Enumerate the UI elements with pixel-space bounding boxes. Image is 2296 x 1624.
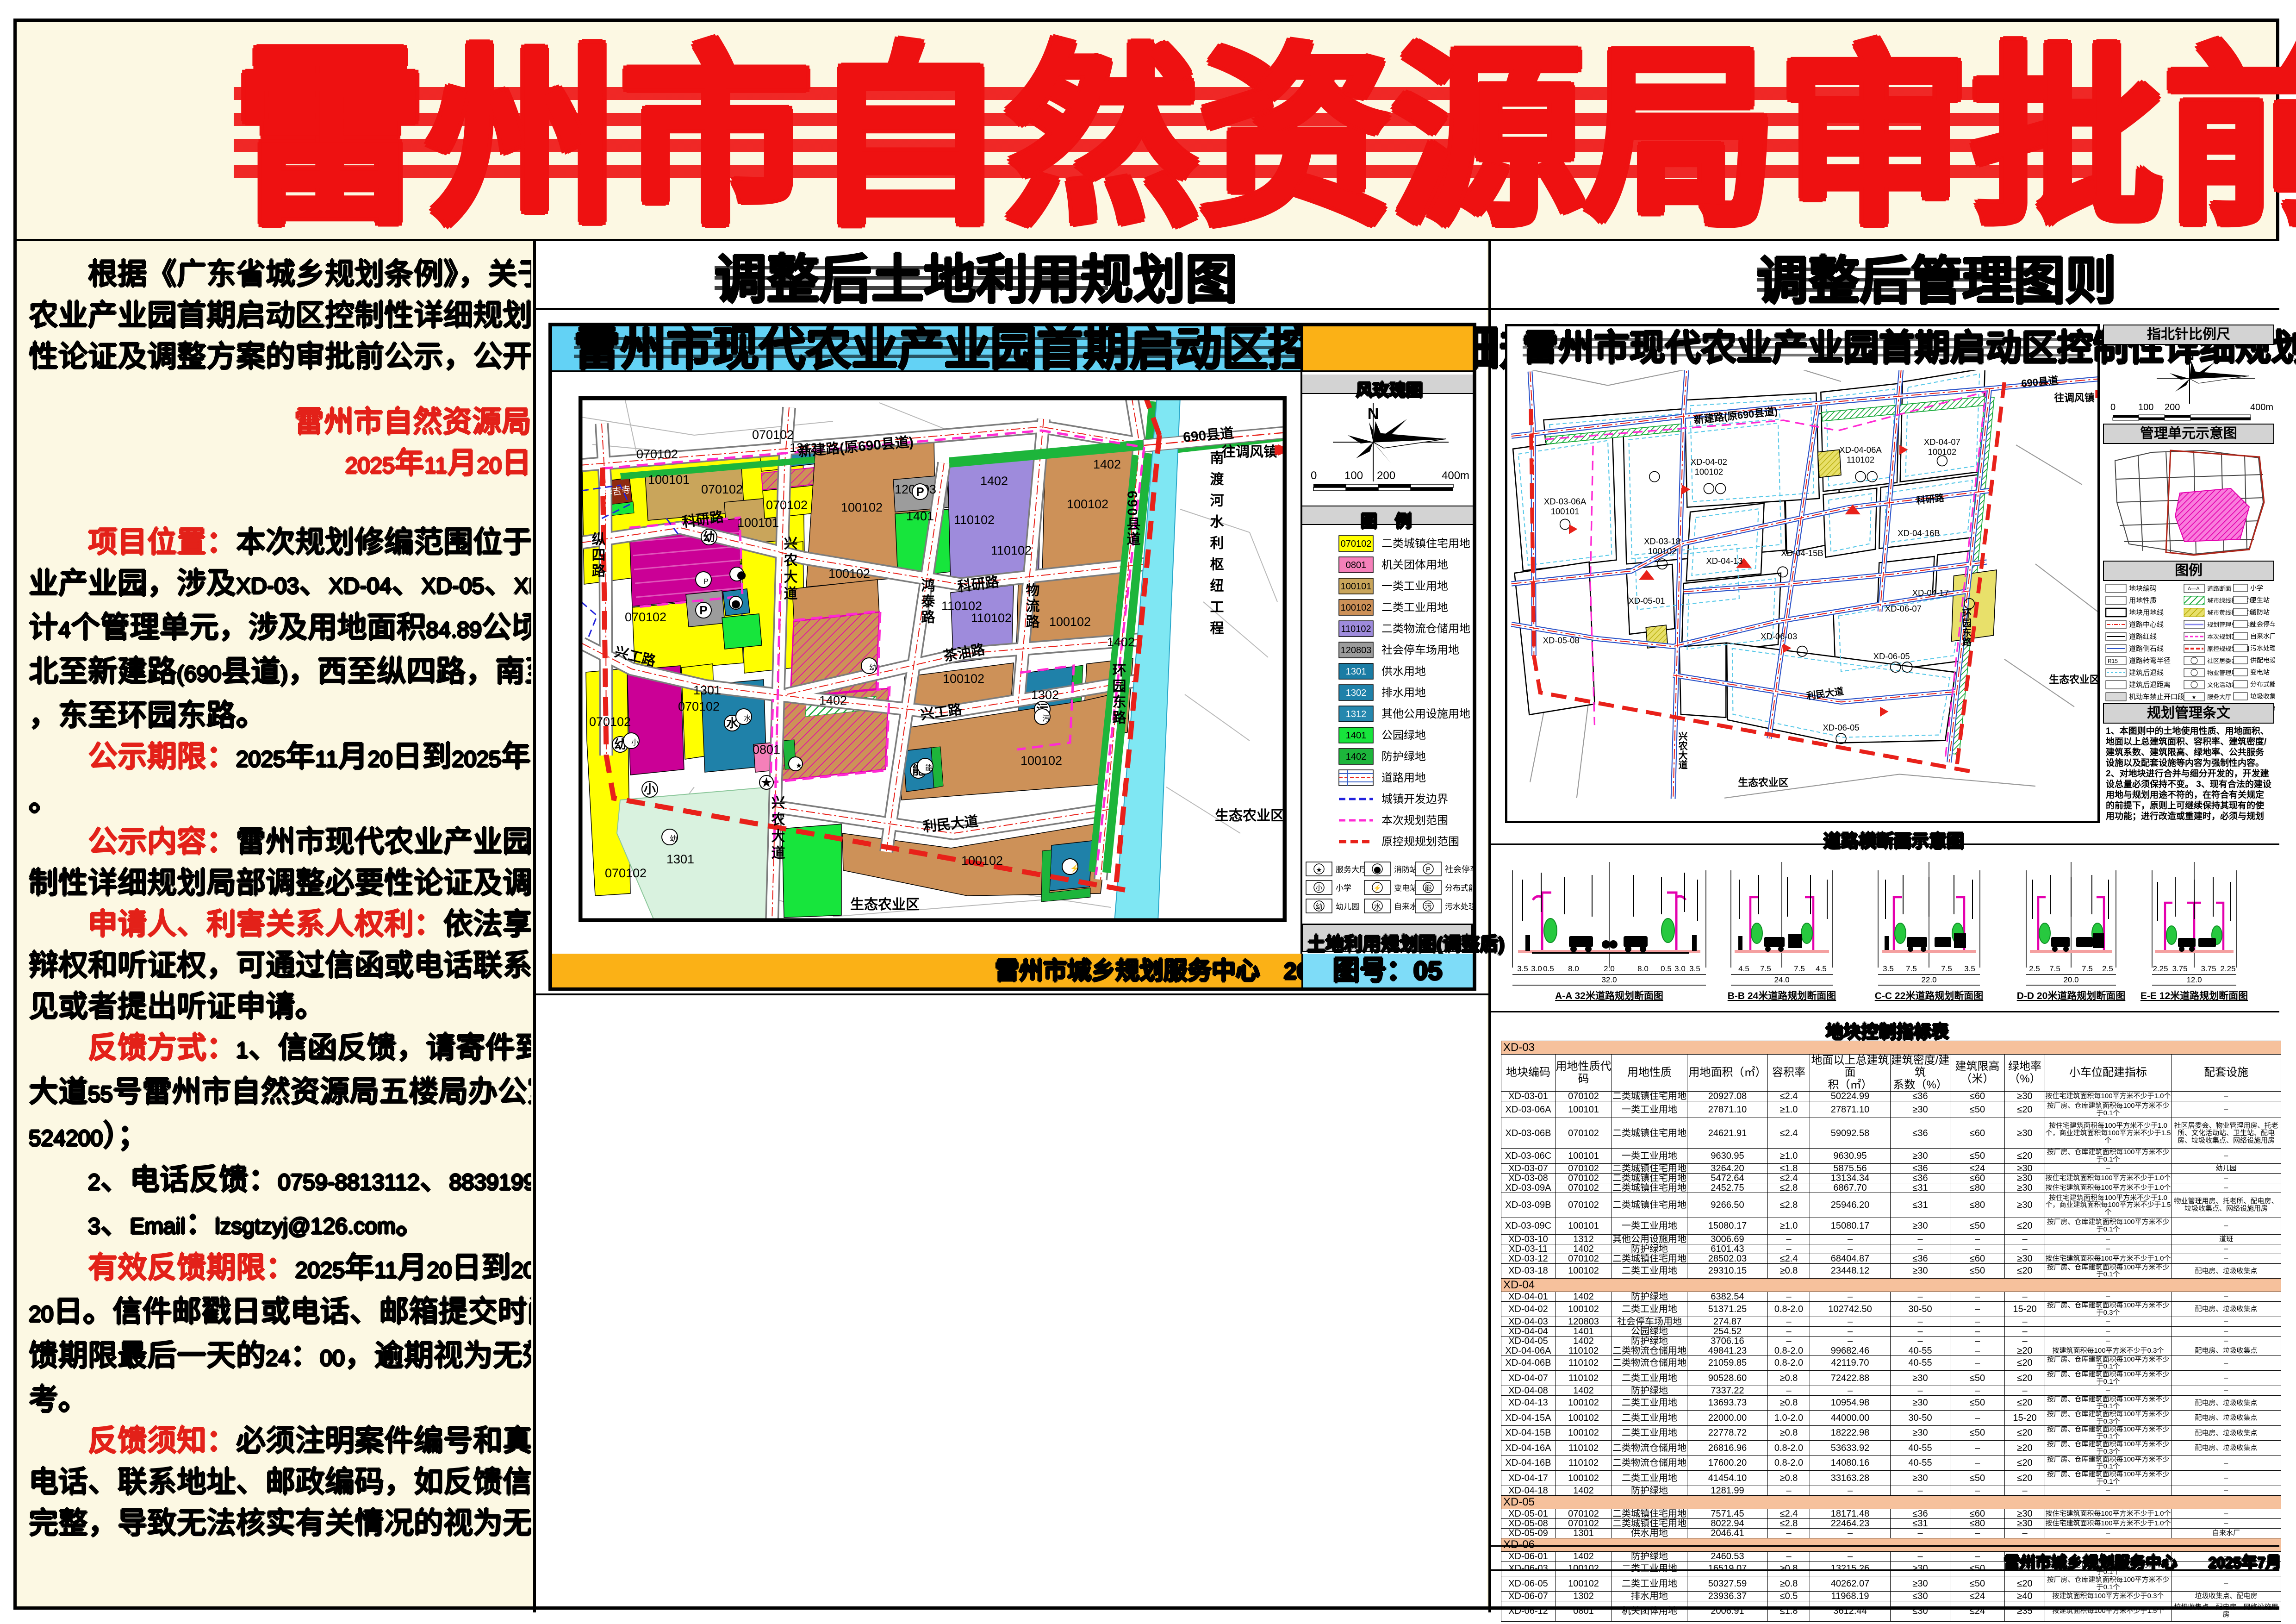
svg-text:污水处理厂: 污水处理厂 xyxy=(2250,644,2275,652)
svg-text:防护绿地: 防护绿地 xyxy=(1381,750,1426,763)
svg-text:100102: 100102 xyxy=(961,854,1003,868)
svg-text:110102: 110102 xyxy=(1847,455,1874,465)
svg-text:小: 小 xyxy=(631,738,639,747)
svg-text:一类工业用地: 一类工业用地 xyxy=(1381,580,1448,593)
svg-text:2.0: 2.0 xyxy=(1604,964,1615,973)
svg-text:⚡: ⚡ xyxy=(1373,884,1381,892)
svg-text:二类工业用地: 二类工业用地 xyxy=(1381,601,1448,614)
svg-text:100102: 100102 xyxy=(943,672,984,686)
svg-text:⬤: ⬤ xyxy=(1374,866,1381,874)
svg-text:100102: 100102 xyxy=(1067,497,1108,511)
svg-text:P: P xyxy=(703,578,709,586)
svg-text:4.5: 4.5 xyxy=(1738,964,1749,973)
svg-text:100101: 100101 xyxy=(1341,581,1372,592)
svg-text:1301: 1301 xyxy=(1346,667,1367,677)
svg-text:建筑后退线: 建筑后退线 xyxy=(2129,669,2164,677)
svg-text:7.5: 7.5 xyxy=(2049,964,2060,973)
svg-text:管理单元示意图: 管理单元示意图 xyxy=(2140,425,2237,441)
svg-text:地块用地线: 地块用地线 xyxy=(2129,609,2164,617)
svg-text:⚡: ⚡ xyxy=(1070,864,1079,873)
svg-text:A-A 32米道路规划断面图: A-A 32米道路规划断面图 xyxy=(1555,990,1663,1001)
svg-text:070102: 070102 xyxy=(605,866,647,880)
svg-text:3.0: 3.0 xyxy=(1531,964,1542,973)
svg-text:小: 小 xyxy=(1315,884,1322,892)
svg-text:小学: 小学 xyxy=(2250,584,2263,592)
svg-text:XD-03-06A: XD-03-06A xyxy=(1544,496,1587,506)
svg-text:⬤: ⬤ xyxy=(737,570,746,580)
svg-text:D-D 20米道路规划断面图: D-D 20米道路规划断面图 xyxy=(2017,990,2126,1001)
svg-text:★: ★ xyxy=(2191,694,2196,700)
svg-text:XD-05-08: XD-05-08 xyxy=(1543,635,1580,645)
svg-text:0: 0 xyxy=(1311,469,1317,482)
svg-text:2.5: 2.5 xyxy=(2102,964,2113,973)
svg-text:兴农大道: 兴农大道 xyxy=(782,536,798,603)
svg-text:XD-06-05: XD-06-05 xyxy=(1823,723,1859,732)
svg-text:100102: 100102 xyxy=(1049,615,1091,629)
svg-text:服务大厅: 服务大厅 xyxy=(1336,865,1367,874)
svg-text:二类城镇住宅用地: 二类城镇住宅用地 xyxy=(1381,537,1470,550)
svg-text:社区居委会: 社区居委会 xyxy=(2207,657,2237,664)
svg-text:070102: 070102 xyxy=(589,715,631,729)
svg-text:100101: 100101 xyxy=(737,516,779,530)
svg-text:小: 小 xyxy=(644,782,656,796)
svg-text:变电站: 变电站 xyxy=(2250,668,2270,676)
svg-text:污水处理厂: 污水处理厂 xyxy=(1445,902,1473,911)
svg-text:P: P xyxy=(916,485,924,499)
svg-text:100: 100 xyxy=(2138,402,2153,412)
svg-text:能: 能 xyxy=(1425,884,1431,892)
svg-text:排水用地: 排水用地 xyxy=(1381,687,1426,699)
svg-text:供水用地: 供水用地 xyxy=(1381,665,1426,678)
svg-text:22.0: 22.0 xyxy=(1921,975,1936,984)
svg-text:110102: 110102 xyxy=(954,513,995,527)
svg-text:道路断面: 道路断面 xyxy=(2207,585,2231,592)
svg-text:110102: 110102 xyxy=(971,611,1012,625)
svg-text:A—A: A—A xyxy=(2188,586,2200,592)
svg-text:0.5: 0.5 xyxy=(1661,964,1672,973)
svg-text:110102: 110102 xyxy=(1341,624,1371,634)
svg-text:7.5: 7.5 xyxy=(1794,964,1805,973)
svg-text:兴农大道: 兴农大道 xyxy=(1677,731,1688,769)
svg-text:E-E 12米道路规划断面图: E-E 12米道路规划断面图 xyxy=(2140,990,2248,1001)
svg-text:城市黄线控制区域: 城市黄线控制区域 xyxy=(2207,609,2255,616)
svg-text:070102: 070102 xyxy=(678,700,720,713)
svg-text:2.25: 2.25 xyxy=(2153,964,2168,973)
svg-text:3.5: 3.5 xyxy=(1883,964,1894,973)
svg-text:070102: 070102 xyxy=(701,482,743,496)
svg-text:2.25: 2.25 xyxy=(2220,964,2235,973)
svg-text:供配电设施用房: 供配电设施用房 xyxy=(2250,656,2275,664)
svg-text:鸿泰路: 鸿泰路 xyxy=(919,578,935,625)
svg-text:★: ★ xyxy=(1316,866,1322,874)
svg-text:0.5: 0.5 xyxy=(1543,964,1554,973)
svg-text:400m: 400m xyxy=(1442,469,1469,482)
svg-text:1401: 1401 xyxy=(1346,731,1367,741)
svg-text:道路红线: 道路红线 xyxy=(2129,633,2157,641)
svg-text:3.5: 3.5 xyxy=(1689,964,1700,973)
svg-text:往调风镇: 往调风镇 xyxy=(2054,392,2094,404)
svg-text:★: ★ xyxy=(796,762,802,770)
svg-text:分布式能源站: 分布式能源站 xyxy=(2250,681,2275,688)
svg-text:服务大厅: 服务大厅 xyxy=(2207,693,2231,700)
svg-text:070102: 070102 xyxy=(636,447,678,461)
svg-text:1312: 1312 xyxy=(1346,709,1367,719)
svg-text:水: 水 xyxy=(1374,903,1381,911)
svg-text:400m: 400m xyxy=(2250,402,2273,412)
svg-text:幼: 幼 xyxy=(670,835,677,843)
svg-text:12.0: 12.0 xyxy=(2186,975,2202,984)
svg-text:生态农业区: 生态农业区 xyxy=(1215,808,1284,824)
svg-text:★: ★ xyxy=(761,775,772,789)
svg-text:物流路: 物流路 xyxy=(1024,583,1040,630)
svg-text:卫生站: 卫生站 xyxy=(2250,596,2270,604)
svg-text:1402: 1402 xyxy=(1093,457,1121,471)
svg-text:1301: 1301 xyxy=(666,852,694,866)
svg-text:道路中心线: 道路中心线 xyxy=(2129,621,2164,629)
svg-text:1302: 1302 xyxy=(1031,688,1059,702)
svg-text:3.5: 3.5 xyxy=(1517,964,1528,973)
svg-text:100101: 100101 xyxy=(1551,506,1580,516)
svg-text:1402: 1402 xyxy=(980,474,1008,488)
svg-text:B-B 24米道路规划断面图: B-B 24米道路规划断面图 xyxy=(1728,990,1836,1001)
svg-text:32.0: 32.0 xyxy=(1601,975,1617,984)
svg-text:生态农业区: 生态农业区 xyxy=(850,897,920,912)
svg-text:生态农业区: 生态农业区 xyxy=(2049,674,2097,685)
svg-text:生态农业区: 生态农业区 xyxy=(1738,777,1788,788)
svg-text:4.5: 4.5 xyxy=(1816,964,1827,973)
svg-text:100102: 100102 xyxy=(1695,467,1724,476)
svg-text:环园东路: 环园东路 xyxy=(1110,663,1126,726)
svg-text:100102: 100102 xyxy=(1341,603,1372,613)
svg-text:道路用地: 道路用地 xyxy=(1381,772,1426,784)
svg-text:污: 污 xyxy=(1042,714,1050,723)
svg-text:幼: 幼 xyxy=(869,663,877,672)
svg-text:XD-06-03: XD-06-03 xyxy=(1761,631,1797,641)
svg-text:100102: 100102 xyxy=(1020,754,1062,768)
svg-text:070102: 070102 xyxy=(752,428,794,442)
svg-text:XD-05-01: XD-05-01 xyxy=(1628,596,1665,606)
svg-text:南渡河水利枢纽工程: 南渡河水利枢纽工程 xyxy=(1208,450,1224,642)
svg-text:XD-04-06A: XD-04-06A xyxy=(1839,445,1882,455)
svg-text:兴农大道: 兴农大道 xyxy=(769,795,786,862)
svg-text:P: P xyxy=(699,603,707,617)
svg-text:机关团体用地: 机关团体用地 xyxy=(1381,559,1448,571)
svg-text:文化活动站: 文化活动站 xyxy=(2207,681,2237,688)
svg-text:XD-06-05: XD-06-05 xyxy=(1873,651,1910,661)
svg-text:小学: 小学 xyxy=(1336,884,1351,893)
svg-text:变电站: 变电站 xyxy=(1394,884,1418,893)
svg-text:XD-03-18: XD-03-18 xyxy=(1644,536,1680,546)
svg-text:XD-04-15B: XD-04-15B xyxy=(1781,548,1823,558)
svg-text:100101: 100101 xyxy=(648,473,690,487)
svg-text:1402: 1402 xyxy=(819,693,847,707)
svg-text:070102: 070102 xyxy=(1341,539,1372,549)
svg-text:0801: 0801 xyxy=(753,743,780,756)
svg-text:幼: 幼 xyxy=(703,530,715,544)
svg-text:20.0: 20.0 xyxy=(2063,975,2078,984)
svg-text:XD-04-16B: XD-04-16B xyxy=(1898,528,1940,538)
svg-text:本次规划范围: 本次规划范围 xyxy=(1381,814,1448,827)
svg-text:1302: 1302 xyxy=(1346,688,1367,698)
svg-text:规划管理条文: 规划管理条文 xyxy=(2147,705,2230,721)
svg-text:100: 100 xyxy=(1344,469,1363,482)
svg-text:P: P xyxy=(1426,866,1431,874)
svg-text:3.75: 3.75 xyxy=(2172,964,2187,973)
svg-text:用地性质: 用地性质 xyxy=(2129,597,2157,605)
svg-text:0801: 0801 xyxy=(1346,560,1367,570)
svg-text:水: 水 xyxy=(744,714,751,723)
svg-text:规划管理单元界线: 规划管理单元界线 xyxy=(2207,621,2255,628)
svg-text:往调风镇: 往调风镇 xyxy=(1222,444,1277,460)
svg-text:消防站: 消防站 xyxy=(1394,865,1418,874)
svg-text:3.5: 3.5 xyxy=(1964,964,1975,973)
svg-text:XD-04-02: XD-04-02 xyxy=(1691,457,1727,467)
svg-text:能: 能 xyxy=(925,764,933,772)
svg-text:070102: 070102 xyxy=(766,498,808,512)
svg-text:垃圾收集点: 垃圾收集点 xyxy=(2250,693,2275,700)
svg-text:690县道: 690县道 xyxy=(1125,491,1141,546)
svg-text:二类物流仓储用地: 二类物流仓储用地 xyxy=(1381,623,1470,635)
svg-text:1401: 1401 xyxy=(906,509,934,523)
svg-text:图例: 图例 xyxy=(2175,563,2203,578)
svg-text:XD-04-07: XD-04-07 xyxy=(1924,437,1960,447)
svg-text:机动车禁止开口段: 机动车禁止开口段 xyxy=(2129,693,2184,701)
svg-text:XD-04-13: XD-04-13 xyxy=(1706,556,1742,566)
svg-text:R15: R15 xyxy=(2108,658,2118,664)
svg-text:分布式能源站: 分布式能源站 xyxy=(1445,884,1473,893)
svg-text:100102: 100102 xyxy=(828,567,870,581)
svg-text:纵四路: 纵四路 xyxy=(590,532,606,579)
svg-text:社会停车场: 社会停车场 xyxy=(2250,620,2275,628)
svg-text:道路转弯半径: 道路转弯半径 xyxy=(2129,657,2171,665)
svg-text:社会停车场用地: 社会停车场用地 xyxy=(1381,644,1459,656)
svg-text:110102: 110102 xyxy=(991,543,1032,557)
svg-text:070102: 070102 xyxy=(625,610,666,624)
svg-text:幼儿园: 幼儿园 xyxy=(1336,902,1359,911)
svg-text:3.0: 3.0 xyxy=(1674,964,1686,973)
svg-text:7.5: 7.5 xyxy=(2082,964,2093,973)
svg-text:7.5: 7.5 xyxy=(1906,964,1917,973)
svg-text:幼: 幼 xyxy=(1315,903,1322,911)
svg-text:建筑后退距离: 建筑后退距离 xyxy=(2129,681,2171,689)
svg-text:120803: 120803 xyxy=(1341,645,1372,656)
svg-text:城市绿线控制区域: 城市绿线控制区域 xyxy=(2207,597,2255,604)
svg-text:200: 200 xyxy=(1377,469,1395,482)
svg-text:1402: 1402 xyxy=(1346,752,1367,762)
svg-text:7.5: 7.5 xyxy=(1760,964,1771,973)
svg-text:污: 污 xyxy=(1425,903,1431,911)
svg-text:C-C 22米道路规划断面图: C-C 22米道路规划断面图 xyxy=(1875,990,1984,1001)
svg-text:24.0: 24.0 xyxy=(1774,975,1789,984)
svg-text:消防站: 消防站 xyxy=(2250,608,2270,616)
svg-text:1402: 1402 xyxy=(1107,635,1135,649)
svg-text:⬤: ⬤ xyxy=(731,600,740,609)
svg-text:200: 200 xyxy=(2165,402,2180,412)
svg-text:其他公用设施用地: 其他公用设施用地 xyxy=(1381,708,1470,720)
svg-text:1301: 1301 xyxy=(693,683,721,697)
svg-text:公园绿地: 公园绿地 xyxy=(1381,729,1426,742)
svg-text:100102: 100102 xyxy=(841,500,883,514)
svg-text:指北针比例尺: 指北针比例尺 xyxy=(2147,327,2230,342)
svg-text:原控规规划范围: 原控规规划范围 xyxy=(1381,836,1459,848)
svg-text:地块编码: 地块编码 xyxy=(2129,585,2157,593)
svg-text:8.0: 8.0 xyxy=(1568,964,1579,973)
svg-text:7.5: 7.5 xyxy=(1941,964,1952,973)
svg-text:100102: 100102 xyxy=(1928,447,1957,456)
svg-text:2.5: 2.5 xyxy=(2029,964,2040,973)
svg-text:城镇开发边界: 城镇开发边界 xyxy=(1381,793,1448,806)
svg-text:社会停车场: 社会停车场 xyxy=(1445,865,1473,874)
svg-text:XD-06-07: XD-06-07 xyxy=(1885,604,1922,613)
svg-text:100102: 100102 xyxy=(1648,546,1677,556)
svg-text:XD-04-17: XD-04-17 xyxy=(1912,588,1949,598)
svg-text:0: 0 xyxy=(2110,402,2116,412)
svg-text:3.75: 3.75 xyxy=(2201,964,2216,973)
svg-text:8.0: 8.0 xyxy=(1637,964,1649,973)
svg-text:道路侧石线: 道路侧石线 xyxy=(2129,645,2164,653)
svg-text:环园东路: 环园东路 xyxy=(1960,608,1972,647)
svg-text:自来水厂: 自来水厂 xyxy=(2250,632,2275,640)
